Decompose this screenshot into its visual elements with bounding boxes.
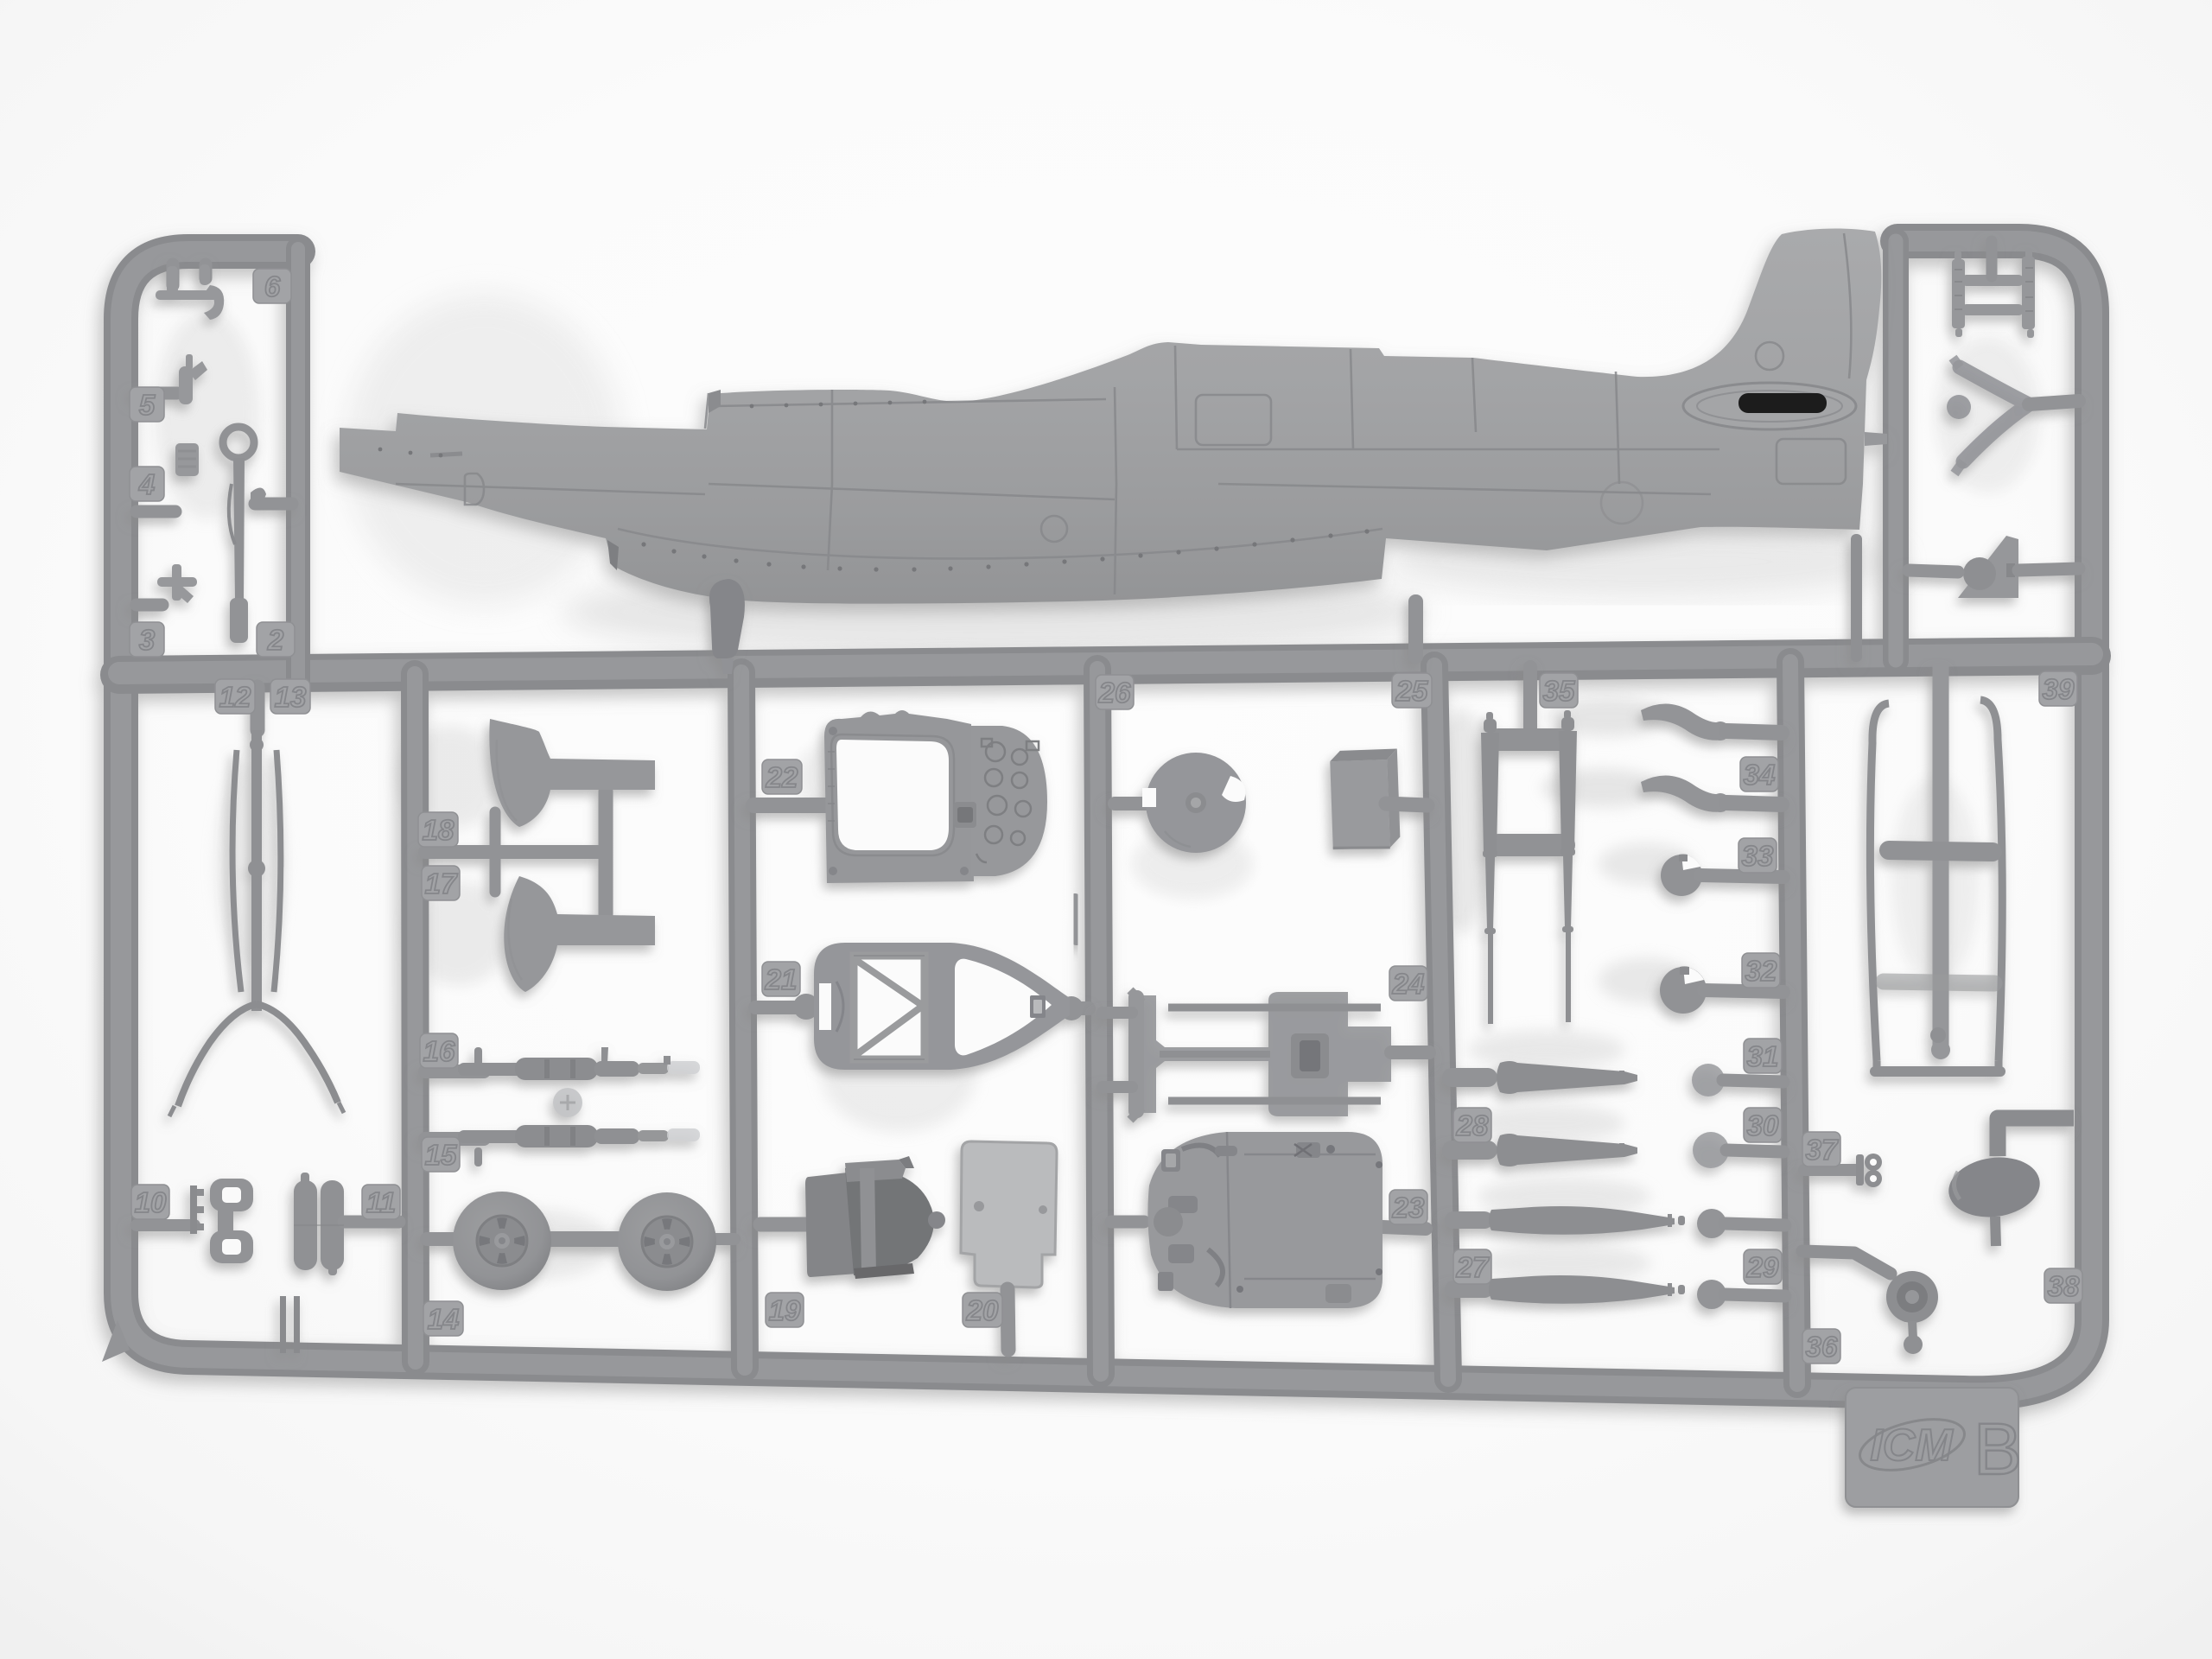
svg-text:4: 4 (138, 468, 155, 500)
svg-text:31: 31 (1747, 1040, 1779, 1072)
svg-text:14: 14 (428, 1303, 460, 1335)
svg-text:3: 3 (139, 624, 155, 656)
svg-text:22: 22 (766, 761, 798, 793)
svg-text:36: 36 (1806, 1331, 1838, 1363)
svg-text:37: 37 (1806, 1134, 1839, 1166)
svg-text:26: 26 (1098, 677, 1131, 709)
svg-text:13: 13 (275, 681, 307, 713)
svg-text:19: 19 (769, 1294, 801, 1326)
svg-text:5: 5 (139, 389, 156, 421)
svg-text:ICM: ICM (1870, 1421, 1954, 1471)
svg-text:24: 24 (1392, 968, 1425, 1000)
svg-text:18: 18 (423, 814, 454, 846)
svg-text:15: 15 (425, 1139, 457, 1171)
svg-text:33: 33 (1742, 840, 1774, 872)
svg-text:B: B (1974, 1408, 2022, 1490)
svg-text:11: 11 (366, 1186, 396, 1218)
svg-text:2: 2 (267, 624, 284, 656)
svg-text:29: 29 (1746, 1251, 1779, 1283)
svg-text:30: 30 (1747, 1109, 1779, 1141)
svg-text:17: 17 (425, 868, 458, 899)
svg-text:25: 25 (1395, 675, 1428, 707)
svg-text:21: 21 (765, 963, 798, 995)
svg-text:27: 27 (1456, 1251, 1490, 1283)
svg-text:23: 23 (1392, 1192, 1425, 1224)
svg-text:34: 34 (1744, 759, 1776, 791)
svg-text:16: 16 (423, 1035, 455, 1067)
svg-text:28: 28 (1456, 1109, 1489, 1141)
svg-text:38: 38 (2048, 1270, 2080, 1302)
svg-text:32: 32 (1745, 955, 1777, 987)
svg-text:20: 20 (966, 1294, 999, 1326)
svg-text:6: 6 (264, 270, 281, 302)
svg-text:39: 39 (2043, 673, 2075, 705)
svg-text:10: 10 (135, 1186, 167, 1218)
svg-text:12: 12 (219, 681, 251, 713)
svg-text:35: 35 (1543, 675, 1575, 707)
